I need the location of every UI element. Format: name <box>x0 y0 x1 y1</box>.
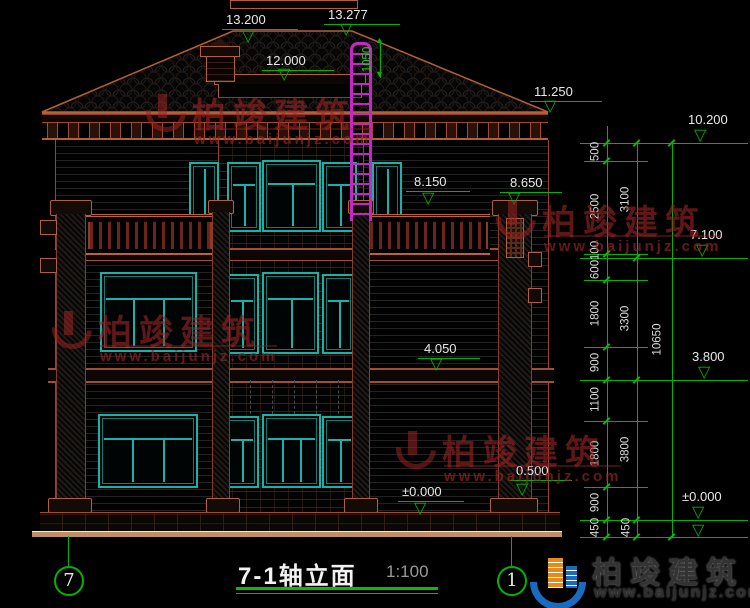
corbel <box>40 258 57 273</box>
level-line <box>530 101 602 102</box>
level-mark-icon: ▽ <box>692 523 704 539</box>
level-line <box>418 358 480 359</box>
level-mark-icon: ▽ <box>340 22 352 38</box>
railing-balusters <box>88 222 212 249</box>
window <box>262 272 319 354</box>
window-mullion <box>242 440 244 482</box>
level-label: 13.277 <box>328 7 368 22</box>
level-label: 8.650 <box>510 175 543 190</box>
corbel <box>528 288 542 303</box>
pilaster-base-cap <box>48 498 92 513</box>
window <box>225 416 259 488</box>
drawing-title: 7-1轴立面 <box>238 556 357 591</box>
dim-arrow-icon: ▼ <box>375 70 384 79</box>
left-pilaster <box>56 214 86 498</box>
watermark-building-icon <box>158 94 167 118</box>
level-mark-icon: ▽ <box>692 505 704 521</box>
level-line <box>262 70 334 71</box>
dim-label: 500 <box>590 130 603 174</box>
pilaster-base-cap <box>490 498 538 513</box>
level-mark-icon: ▽ <box>544 99 556 115</box>
axis-line <box>68 536 69 566</box>
window-mullion <box>292 184 294 226</box>
title-underline <box>236 587 438 590</box>
chimney-body <box>206 56 235 82</box>
hidden-stair-line <box>294 380 296 414</box>
dim-label: 1800 <box>590 292 603 336</box>
corbel <box>40 220 57 235</box>
level-label: 10.200 <box>688 112 728 127</box>
level-mark-icon: ▽ <box>694 128 706 144</box>
window-mullion <box>340 186 342 226</box>
dim-label: 1100 <box>590 378 603 422</box>
level-label: 8.150 <box>414 174 447 189</box>
axis-line <box>511 536 512 566</box>
dim-label: 1050 <box>362 38 375 82</box>
level-mark-icon: ▽ <box>422 191 434 207</box>
level-line <box>324 24 400 25</box>
axis-bubble-1: 1 <box>497 566 527 596</box>
window-mullion <box>300 439 302 482</box>
balcony-railing <box>366 214 490 255</box>
tower-pilaster <box>352 212 370 498</box>
level-label: 3.800 <box>692 349 725 364</box>
elevation-drawing: ▲ ▼ 1050 13.200 ▽ 13.277 ▽ 12.000 ▽ 11.2… <box>0 0 750 608</box>
watermark-building-icon <box>408 431 417 455</box>
window-transom <box>106 298 191 300</box>
window <box>262 414 321 488</box>
level-line <box>406 191 470 192</box>
balcony-railing <box>86 214 214 255</box>
window <box>98 414 198 488</box>
hidden-stair-line <box>338 380 340 414</box>
watermark-building-icon <box>64 311 73 335</box>
logo-building-blue-icon <box>566 566 577 588</box>
window-mullion <box>163 439 165 482</box>
level-line <box>222 29 298 30</box>
window-mullion <box>132 439 134 482</box>
hidden-stair-line <box>316 380 318 414</box>
drawing-scale: 1:100 <box>386 562 429 582</box>
title-underline-thin <box>236 593 438 594</box>
level-mark-icon: ▽ <box>430 357 442 373</box>
window-mullion <box>282 439 284 482</box>
axis-bubble-7: 7 <box>54 566 84 596</box>
hidden-stair-line <box>272 380 274 414</box>
watermark-url: www.baijunjz.com <box>544 235 721 255</box>
watermark-building-icon <box>508 201 517 225</box>
pilaster-base-cap <box>206 498 240 513</box>
window-mullion <box>291 300 293 348</box>
ground-line <box>32 531 562 537</box>
dim-label: 450 <box>590 506 603 550</box>
logo-building-orange-icon <box>548 558 563 588</box>
window-transom <box>104 438 192 440</box>
stone-base-course <box>40 512 560 532</box>
level-label: 11.250 <box>534 84 573 99</box>
watermark-url: www.baijunjz.com <box>100 345 277 365</box>
second-floor-band <box>48 368 554 383</box>
logo-url: www.baijunjz.com <box>594 584 750 602</box>
window-transom <box>268 438 315 440</box>
level-mark-icon: ▽ <box>242 29 254 45</box>
dim-arrow-icon: ▲ <box>375 36 384 45</box>
railing-balusters <box>368 222 488 249</box>
window <box>322 274 355 354</box>
level-label: 13.200 <box>226 12 266 27</box>
dim-label: 3300 <box>620 297 633 341</box>
level-label: ±0.000 <box>402 484 442 499</box>
window-mullion <box>340 440 342 482</box>
corbel <box>528 252 542 267</box>
level-line <box>398 501 464 502</box>
level-ext-line <box>580 258 748 259</box>
company-logo: 柏竣建筑 www.baijunjz.com <box>528 546 750 606</box>
window-mullion <box>339 301 341 348</box>
window <box>262 160 321 232</box>
hidden-stair-line <box>250 380 252 414</box>
window-mullion <box>244 186 246 226</box>
pilaster-base-cap <box>344 498 378 513</box>
watermark-url: www.baijunjz.com <box>444 465 621 485</box>
level-label: 4.050 <box>424 341 457 356</box>
window <box>227 162 261 232</box>
level-label: ±0.000 <box>682 489 722 504</box>
level-mark-icon: ▽ <box>414 501 426 517</box>
level-mark-icon: ▽ <box>698 365 710 381</box>
level-mark-icon: ▽ <box>278 67 290 83</box>
watermark-url: www.baijunjz.com <box>194 128 371 148</box>
dim-label: 10650 <box>652 318 665 362</box>
dim-label: 450 <box>621 506 634 550</box>
